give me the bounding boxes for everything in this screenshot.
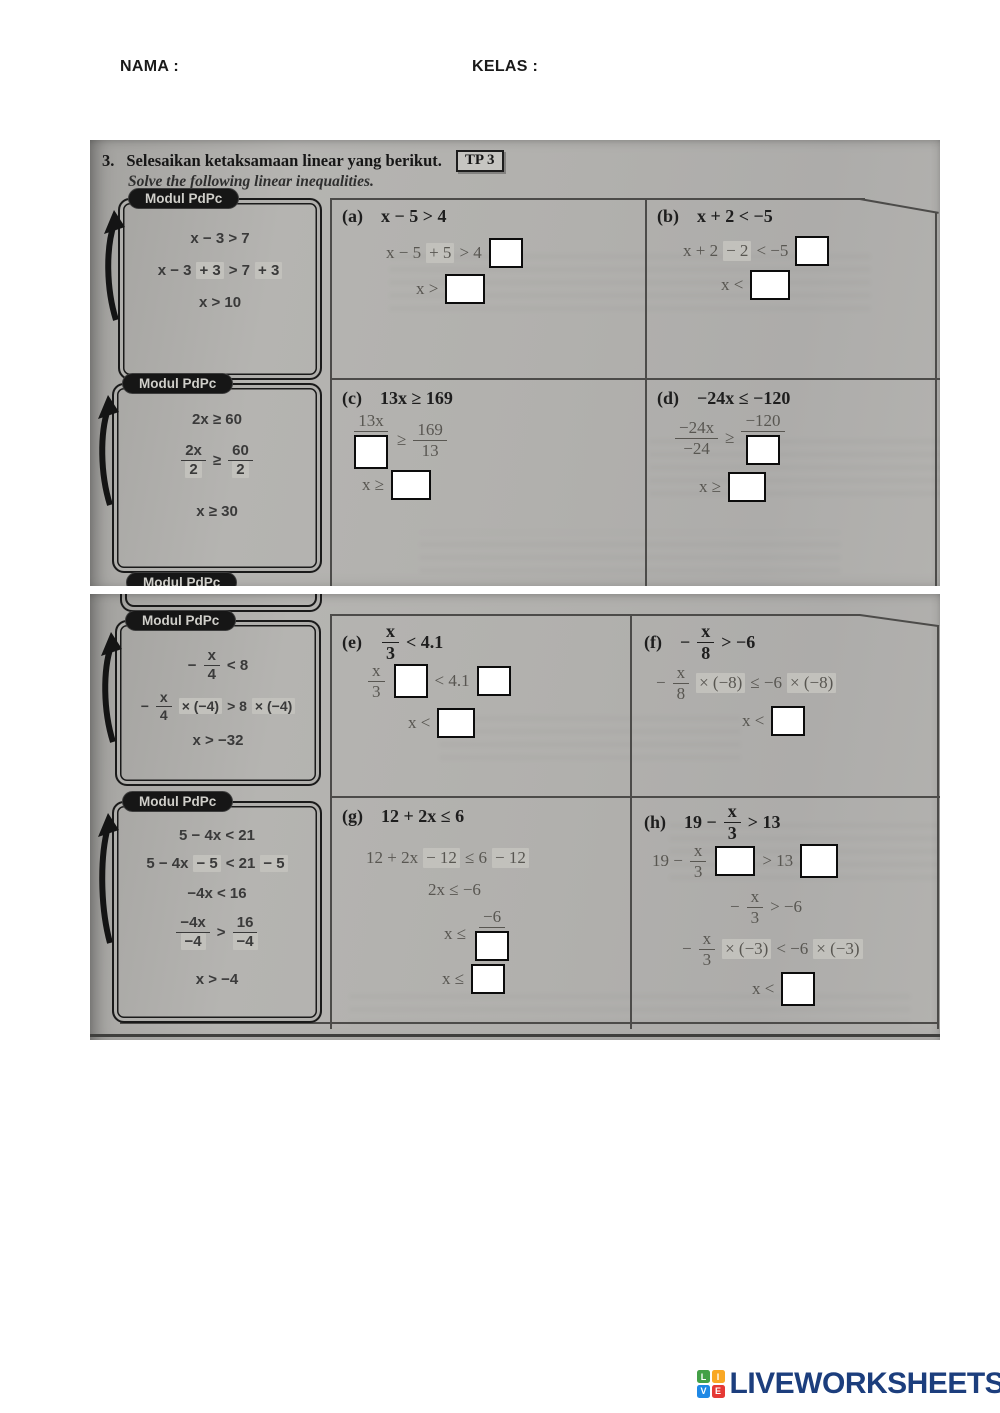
math-fragment: −4x < 16 [187,885,246,902]
math-fragment: 8 [673,684,690,703]
highlighted-term: × (−3) [813,939,862,959]
math-fragment: ≥ [213,452,221,469]
fraction: x4 [156,690,172,722]
math-fragment: > 13 [748,812,781,833]
fraction: x4 [204,648,220,683]
item-label: (a) [342,206,363,227]
highlighted-term: + 5 [426,243,454,263]
highlighted-term: × (−4) [252,698,295,714]
fraction: 13x [352,412,390,469]
math-fragment: 16 [233,915,258,933]
cell-e: (e) x3 < 4.1 x3 < 4.1 x < [330,614,630,796]
highlighted-term: + 3 [196,262,223,279]
math-fragment: − [730,897,740,917]
math-fragment: 169 [413,421,447,441]
math-fragment: < 8 [227,657,248,674]
math-fragment: 3 [368,682,385,701]
fraction: −4x−4 [176,915,209,950]
student-info-row: NAMA : KELAS : [120,58,880,76]
cell-g: (g) 12 + 2x ≤ 6 12 + 2x − 12 ≤ 6 − 12 2x… [330,796,630,1029]
answer-input[interactable] [445,274,485,304]
highlighted-term: − 5 [193,855,220,872]
answer-input[interactable] [471,964,505,994]
math-fragment: x + 2 [683,241,718,261]
highlighted-term: −4 [181,933,206,950]
math-fragment: −24x ≤ −120 [697,388,790,409]
cell-b: (b) x + 2 < −5 x + 2 − 2 < −5 x < [645,198,940,378]
liveworksheets-logo: L I V E LIVEWORKSHEETS [697,1368,1000,1400]
worksheet-page: NAMA : KELAS : 3. Selesaikan ketaksamaan… [0,0,1000,1413]
math-fragment: 13x ≥ 169 [380,388,453,409]
answer-input[interactable] [394,664,428,698]
answer-input[interactable] [728,472,766,502]
modul-box-2: Modul PdPc 2x ≥ 60 2x2 ≥ 602 x ≥ 30 [112,383,322,573]
math-fragment: > [217,924,226,941]
math-fragment: > 4 [459,243,481,263]
math-fragment: 60 [228,443,253,461]
math-fragment: − [188,657,197,674]
math-fragment: < 21 [226,855,256,872]
modul-tab-partial: Modul PdPc [126,572,237,586]
math-fragment: 13x [354,412,388,432]
answer-input[interactable] [354,435,388,469]
math-fragment: 2x ≤ −6 [428,880,481,900]
math-fragment: x ≥ [699,477,721,497]
cell-c: (c) 13x ≥ 169 13x ≥ 16913 x ≥ [330,378,645,578]
math-fragment: 2x [181,443,206,461]
liveworksheets-grid-icon: L I V E [697,1370,725,1398]
highlighted-term: 2 [185,461,201,478]
math-fragment: 3 [699,950,716,969]
cell-f: (f) − x8 > −6 − x8 × (−8) ≤ −6 × (−8) x … [630,614,940,796]
answer-input[interactable] [800,844,838,878]
highlighted-term: × (−4) [179,698,222,714]
math-fragment: 5 − 4x < 21 [179,827,255,844]
math-fragment: x − 5 > 4 [381,206,447,227]
math-fragment: x + 2 < −5 [697,206,773,227]
arrow-icon [102,208,128,328]
fraction: 602 [228,443,253,478]
math-fragment: x ≥ 30 [196,503,238,520]
math-fragment: x < [742,711,764,731]
item-label: (f) [644,632,662,653]
math-fragment: x [382,622,399,643]
item-label: (b) [657,206,679,227]
math-fragment: x ≤ [442,969,464,989]
fraction: x3 [747,888,764,927]
math-fragment: 5 − 4x [146,855,188,872]
logo-letter-v: V [697,1385,710,1398]
fraction: x3 [690,842,707,881]
answer-input[interactable] [391,470,431,500]
modul-box-partial-inner [125,594,317,607]
math-fragment: x > [416,279,438,299]
math-fragment: 2x ≥ 60 [192,411,242,428]
math-fragment: ≥ [725,428,734,448]
math-fragment: x ≤ [444,924,466,944]
arrow-icon [99,630,125,750]
kelas-label: KELAS : [472,58,538,76]
math-fragment: −120 [741,412,784,432]
cell-h: (h) 19 − x3 > 13 19 − x3 > 13 − x3 > −6 … [630,796,940,1029]
fraction: 16913 [413,421,447,460]
math-fragment: − [682,939,692,959]
scan-section-2: Modul PdPc − x4 < 8 − x4 × (−4) > 8 × (−… [90,594,940,1040]
item-label: (e) [342,632,362,653]
math-fragment: x > −4 [196,971,239,988]
answer-input[interactable] [795,236,829,266]
math-fragment: x > 10 [199,294,241,311]
math-fragment: −6 [479,908,505,928]
math-fragment: 12 + 2x ≤ 6 [381,806,464,827]
fraction: −120 [741,412,784,465]
item-label: (g) [342,806,363,827]
arrow-icon [96,393,122,513]
answer-input[interactable] [477,666,511,696]
math-fragment: 3 [724,823,741,843]
math-fragment: x [204,648,220,666]
question-number: 3. [102,151,114,171]
answer-input[interactable] [489,238,523,268]
answer-input[interactable] [437,708,475,738]
fraction: −24x−24 [675,419,718,458]
question-title-malay: Selesaikan ketaksamaan linear yang berik… [126,151,442,171]
math-fragment: > 13 [762,851,793,871]
scan-section-1: 3. Selesaikan ketaksamaan linear yang be… [90,140,940,586]
cell-d: (d) −24x ≤ −120 −24x−24 ≥ −120 x ≥ [645,378,940,578]
math-fragment: 12 + 2x [366,848,418,868]
highlighted-term: − 5 [260,855,287,872]
modul-box-4: Modul PdPc 5 − 4x < 21 5 − 4x − 5 < 21 −… [112,801,322,1023]
fraction: x8 [673,664,690,703]
math-fragment: x [697,622,714,643]
answer-input[interactable] [771,706,805,736]
math-fragment: x ≥ [362,475,384,495]
modul-tab: Modul PdPc [122,791,233,812]
math-fragment: x [724,802,741,823]
modul-box-3: Modul PdPc − x4 < 8 − x4 × (−4) > 8 × (−… [115,620,321,786]
answer-input[interactable] [715,846,755,876]
math-fragment: − [656,673,666,693]
item-label: (h) [644,812,666,833]
liveworksheets-wordmark: LIVEWORKSHEETS [730,1368,1000,1400]
math-fragment: −4x [176,915,209,933]
item-label: (d) [657,388,679,409]
answer-input[interactable] [781,972,815,1006]
math-fragment: 3 [382,643,399,663]
math-fragment: x [699,930,716,950]
math-fragment: 3 [690,862,707,881]
modul-tab: Modul PdPc [128,188,239,209]
math-fragment: < 4.1 [435,671,470,691]
math-fragment: 4 [204,666,220,683]
math-fragment: ≥ [397,430,406,450]
modul-tab: Modul PdPc [122,373,233,394]
highlighted-term: − 12 [423,848,460,868]
math-fragment: −24 [679,439,714,458]
page-edge [90,1034,940,1037]
fraction: −6 [473,908,511,961]
math-fragment: −24x [675,419,718,439]
logo-letter-e: E [712,1385,725,1398]
math-fragment: 4 [156,707,172,723]
math-fragment: x [690,842,707,862]
highlighted-term: × (−8) [787,673,836,693]
math-fragment: x > −32 [193,732,244,749]
math-fragment: > 8 [227,698,247,714]
math-fragment: − [680,632,690,653]
arrow-icon [96,811,122,951]
item-label: (c) [342,388,362,409]
math-fragment: > 7 [229,262,250,279]
highlighted-term: × (−8) [696,673,745,693]
math-fragment: 13 [418,441,443,460]
math-fragment: x [156,690,172,707]
math-fragment: x − 5 [386,243,421,263]
math-fragment: x < [752,979,774,999]
fraction: 16−4 [233,915,258,950]
math-fragment: < −6 [776,939,808,959]
math-fragment: x < [408,713,430,733]
math-fragment: < 4.1 [406,632,443,653]
highlighted-term: + 3 [255,262,282,279]
highlighted-term: − 2 [723,241,751,261]
math-fragment: 19 − [684,812,717,833]
answer-input[interactable] [746,435,780,465]
math-fragment: 19 − [652,851,683,871]
fraction: x3 [368,662,385,701]
math-fragment: ≤ −6 [750,673,782,693]
modul-tab: Modul PdPc [125,610,236,631]
math-fragment: x [673,664,690,684]
math-fragment: ≤ 6 [465,848,487,868]
math-fragment: x − 3 > 7 [190,230,249,247]
fraction: x3 [724,802,741,843]
math-fragment: > −6 [721,632,755,653]
highlighted-term: − 12 [492,848,529,868]
math-fragment: 3 [747,908,764,927]
fraction: x3 [382,622,399,663]
modul-box-1: Modul PdPc x − 3 > 7 x − 3 + 3 > 7 + 3 x… [118,198,322,380]
highlighted-term: × (−3) [722,939,771,959]
answer-input[interactable] [475,931,509,961]
question-header: 3. Selesaikan ketaksamaan linear yang be… [102,150,504,172]
highlighted-term: −4 [233,933,258,950]
math-fragment: x [368,662,385,682]
fraction: 2x2 [181,443,206,478]
math-fragment: < −5 [756,241,788,261]
math-fragment: x − 3 [158,262,192,279]
cell-a: (a) x − 5 > 4 x − 5 + 5 > 4 x > [330,198,645,378]
math-fragment: > −6 [770,897,802,917]
answer-input[interactable] [750,270,790,300]
highlighted-term: 2 [232,461,248,478]
math-fragment: x [747,888,764,908]
math-fragment: x < [721,275,743,295]
math-fragment: − [141,698,149,714]
fraction: x8 [697,622,714,663]
fraction: x3 [699,930,716,969]
nama-label: NAMA : [120,58,179,75]
tp-badge: TP 3 [456,150,504,172]
logo-letter-i: I [712,1370,725,1383]
math-fragment: 8 [697,643,714,663]
logo-letter-l: L [697,1370,710,1383]
